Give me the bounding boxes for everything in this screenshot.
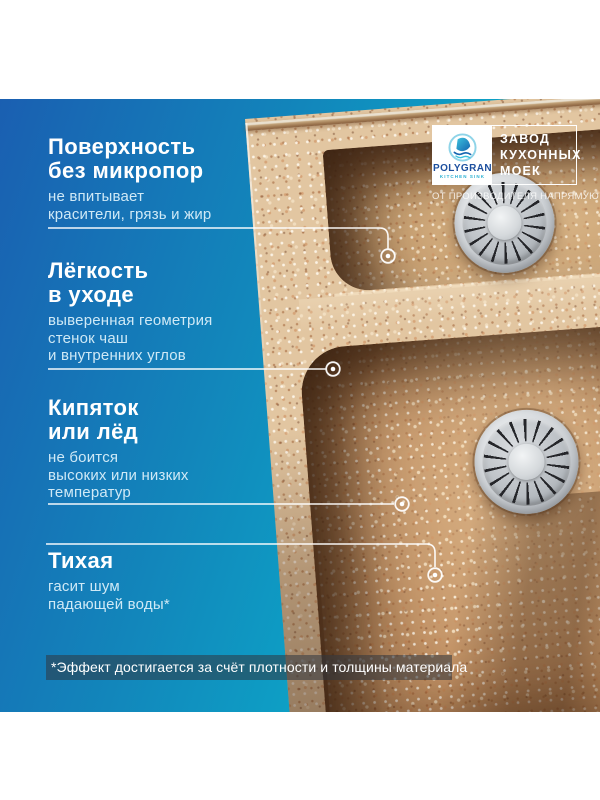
feature-quiet: Тихая гасит шум падающей воды*: [48, 549, 328, 613]
feature-desc: гасит шум падающей воды*: [48, 578, 328, 613]
feature-temperature: Кипяток или лёд не боится высоких или ни…: [48, 396, 328, 502]
feature-title: Тихая: [48, 549, 328, 573]
brand-subtitle: KITCHEN SINK: [440, 174, 485, 180]
brand-badge: POLYGRAN KITCHEN SINK ЗАВОД КУХОННЫХ МОЕ…: [432, 125, 577, 185]
factory-caption: ЗАВОД КУХОННЫХ МОЕК: [492, 126, 582, 184]
feature-easy-care: Лёгкость в уходе выверенная геометрия ст…: [48, 259, 328, 365]
feature-title: Поверхность без микропор: [48, 135, 328, 183]
sink-main-bowl: [298, 325, 600, 712]
polygran-logo-icon: [446, 132, 479, 163]
brand-name: POLYGRAN: [433, 163, 492, 174]
feature-surface: Поверхность без микропор не впитывает кр…: [48, 135, 328, 223]
footnote: *Эффект достигается за счёт плотности и …: [46, 655, 452, 680]
polygran-logo-box: POLYGRAN KITCHEN SINK: [433, 126, 492, 184]
badge-tagline: ОТ ПРОИЗВОДИТЕЛЯ НАПРЯМУЮ: [432, 191, 582, 202]
feature-desc: не впитывает красители, грязь и жир: [48, 188, 328, 223]
feature-title: Кипяток или лёд: [48, 396, 328, 444]
feature-desc: выверенная геометрия стенок чаш и внутре…: [48, 312, 328, 365]
feature-desc: не боится высоких или низких температур: [48, 449, 328, 502]
feature-title: Лёгкость в уходе: [48, 259, 328, 307]
